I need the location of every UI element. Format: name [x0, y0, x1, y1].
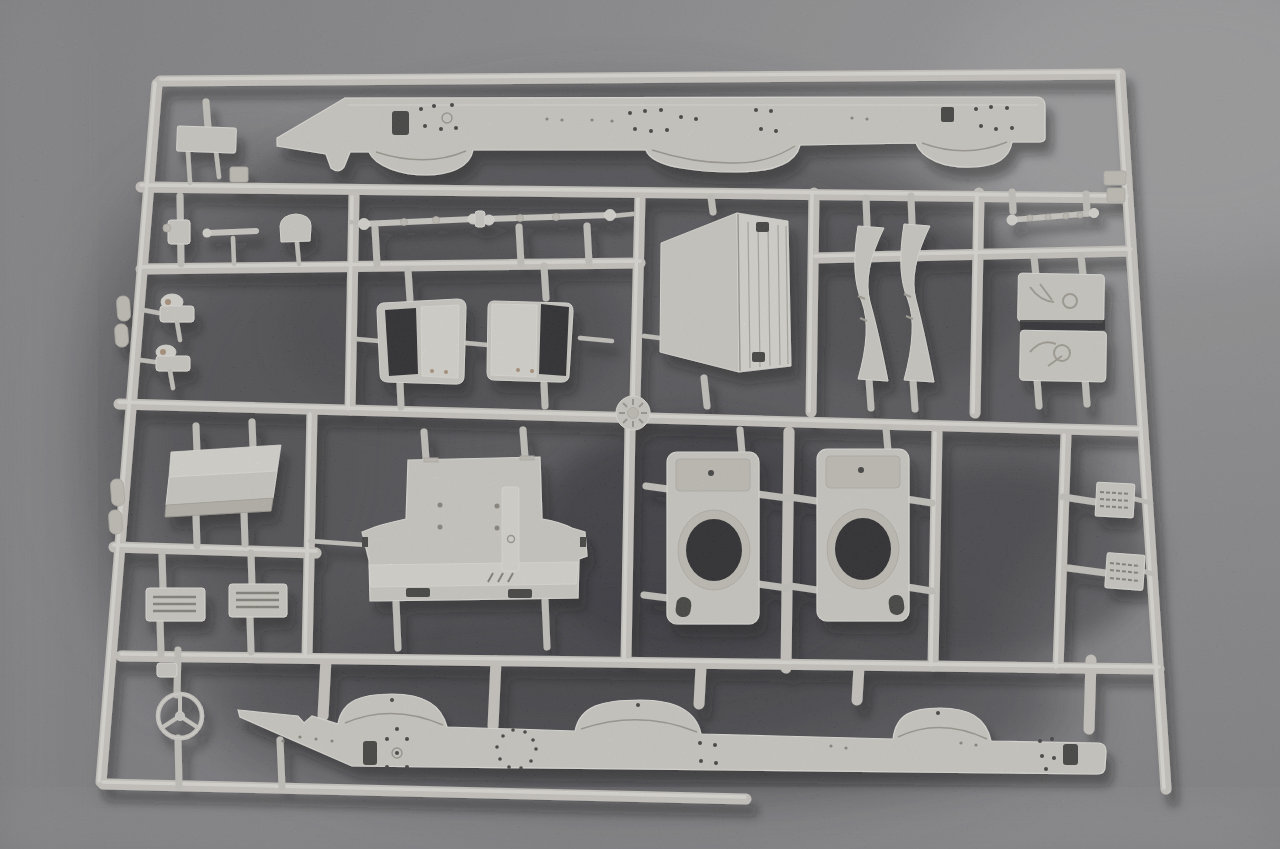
photo-model-kit-sprue	[0, 0, 1280, 849]
grain-light-overlay	[0, 0, 1280, 849]
sprue-photo-canvas	[0, 0, 1280, 849]
